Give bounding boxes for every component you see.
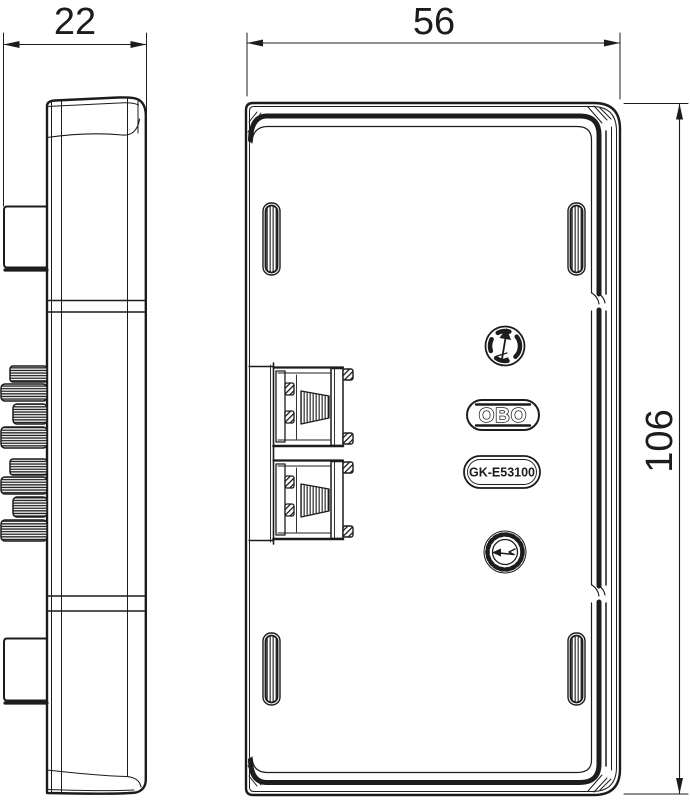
dimension-label-56: 56 — [413, 1, 455, 43]
front-mounting-slot-bottom-left — [263, 633, 280, 705]
front-mounting-slot-bottom-right — [568, 633, 585, 705]
dimension-label-106: 106 — [639, 409, 681, 472]
front-mounting-slot-top-left — [263, 203, 280, 275]
dimension-label-22: 22 — [54, 1, 96, 43]
technical-drawing: OBO GK-E53100 22 56 — [0, 0, 690, 800]
front-mounting-slot-top-right — [568, 203, 585, 275]
screw-direction-icon — [486, 327, 525, 366]
obo-logo-text: OBO — [479, 405, 528, 427]
background — [0, 0, 690, 800]
product-code-text: GK-E53100 — [469, 466, 535, 480]
